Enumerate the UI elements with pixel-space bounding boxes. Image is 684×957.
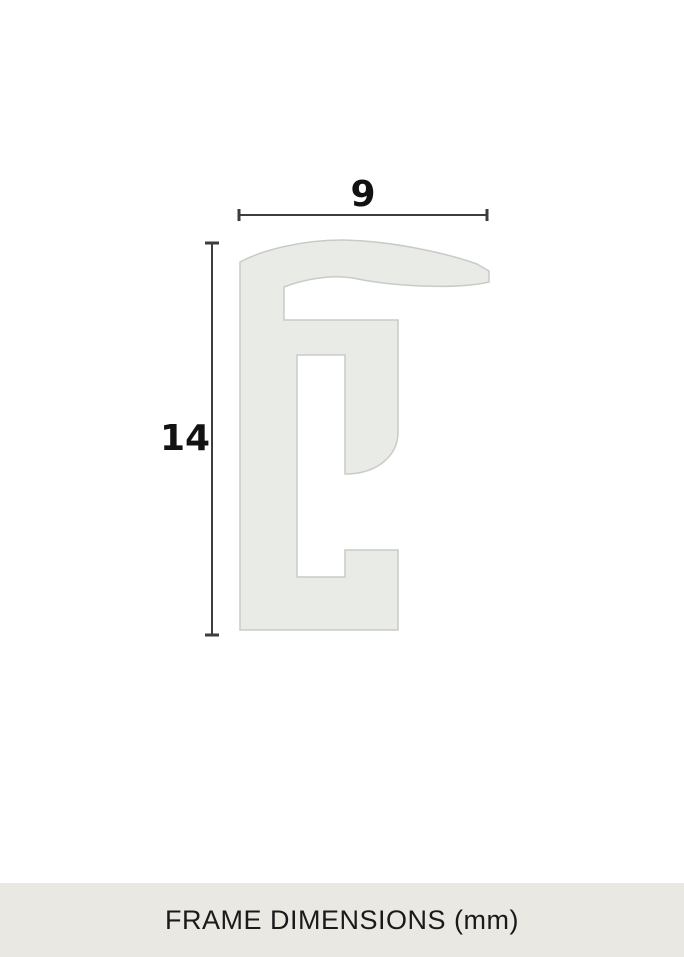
footer-bar: FRAME DIMENSIONS (mm) bbox=[0, 883, 684, 957]
width-dimension: 9 bbox=[239, 174, 487, 221]
footer-label: FRAME DIMENSIONS (mm) bbox=[165, 905, 519, 936]
height-dimension: 14 bbox=[160, 243, 219, 635]
page: 9 14 FRAME DIMENSIONS (mm) bbox=[0, 0, 684, 957]
frame-profile-diagram: 9 14 bbox=[0, 0, 684, 880]
frame-profile-shape bbox=[240, 240, 489, 630]
height-dimension-label: 14 bbox=[160, 418, 210, 459]
width-dimension-label: 9 bbox=[350, 174, 375, 215]
